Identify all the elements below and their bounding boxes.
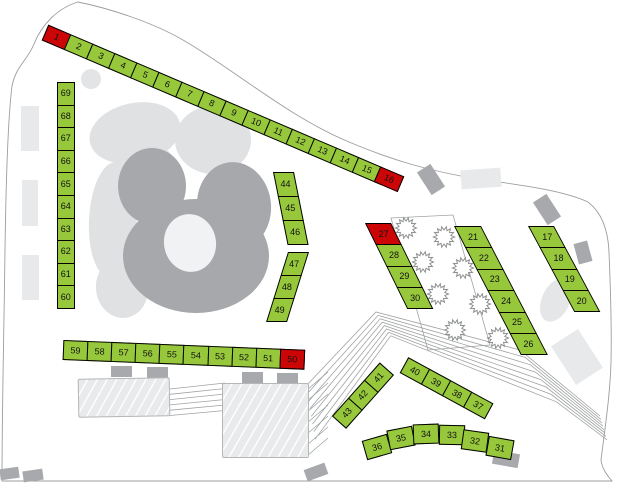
stall-24[interactable]: 24 <box>487 290 526 312</box>
stall-19[interactable]: 19 <box>551 268 589 290</box>
stall-group-arc-a: 444546 <box>273 172 309 245</box>
stall-number: 33 <box>447 430 457 439</box>
stall-55[interactable]: 55 <box>158 343 184 364</box>
stall-number: 44 <box>281 180 291 189</box>
stall-61[interactable]: 61 <box>57 263 75 287</box>
stall-number: 29 <box>399 272 409 281</box>
stall-number: 48 <box>283 283 293 292</box>
stall-group-top-row: 12345678910111213141516 <box>42 24 404 191</box>
stall-number: 26 <box>523 339 533 348</box>
stall-number: 49 <box>276 306 286 315</box>
stall-54[interactable]: 54 <box>182 344 208 365</box>
stall-number: 54 <box>190 350 200 359</box>
stall-number: 45 <box>286 204 296 213</box>
stall-63[interactable]: 63 <box>57 218 75 242</box>
stall-group-col-27: 27282930 <box>365 223 433 309</box>
stall-50[interactable]: 50 <box>279 348 305 369</box>
stall-number: 10 <box>250 116 263 128</box>
stall-68[interactable]: 68 <box>57 105 75 129</box>
stall-number: 6 <box>164 79 172 89</box>
stall-number: 35 <box>395 433 407 444</box>
stall-group-mid-row: 59585756555453525150 <box>62 340 305 370</box>
stall-number: 1 <box>53 32 61 42</box>
stall-47[interactable]: 47 <box>281 252 310 276</box>
stall-number: 46 <box>291 228 301 237</box>
stall-number: 61 <box>61 270 71 279</box>
stall-number: 62 <box>61 247 71 256</box>
stall-25[interactable]: 25 <box>498 311 537 333</box>
stall-number: 66 <box>61 157 71 166</box>
stall-48[interactable]: 48 <box>274 275 303 299</box>
site-map: 1234567891011121314151669686766656463626… <box>0 0 620 485</box>
stall-number: 68 <box>61 112 71 121</box>
stall-number: 15 <box>361 163 374 175</box>
stall-number: 41 <box>372 371 385 384</box>
stall-group-row-40: 40393837 <box>400 357 494 419</box>
stall-35[interactable]: 35 <box>386 426 415 451</box>
stall-27[interactable]: 27 <box>365 223 402 245</box>
stall-number: 28 <box>388 251 398 260</box>
stall-number: 60 <box>61 293 71 302</box>
stall-number: 59 <box>70 345 80 354</box>
stall-60[interactable]: 60 <box>57 285 75 309</box>
stall-number: 47 <box>290 260 300 269</box>
stall-46[interactable]: 46 <box>283 220 309 245</box>
stall-number: 58 <box>94 346 104 355</box>
stall-group-col-21: 212223242526 <box>454 226 548 355</box>
stall-number: 3 <box>97 51 105 61</box>
stall-number: 23 <box>490 275 500 284</box>
stall-number: 4 <box>119 60 127 70</box>
stall-28[interactable]: 28 <box>375 244 412 266</box>
stall-44[interactable]: 44 <box>273 172 299 197</box>
stall-number: 67 <box>61 134 71 143</box>
stall-51[interactable]: 51 <box>255 347 281 368</box>
stall-number: 9 <box>230 108 238 118</box>
stall-number: 52 <box>238 352 248 361</box>
stall-number: 12 <box>294 135 307 147</box>
stall-number: 56 <box>142 348 152 357</box>
stall-number: 27 <box>378 229 388 238</box>
stall-number: 30 <box>409 293 419 302</box>
stall-layer: 1234567891011121314151669686766656463626… <box>0 0 620 485</box>
stall-number: 69 <box>61 89 71 98</box>
stall-number: 25 <box>512 318 522 327</box>
stall-number: 11 <box>272 126 284 138</box>
stall-32[interactable]: 32 <box>461 429 490 452</box>
stall-30[interactable]: 30 <box>396 287 433 309</box>
stall-69[interactable]: 69 <box>57 82 75 106</box>
stall-group-col-17: 17181920 <box>528 226 600 312</box>
stall-number: 20 <box>576 296 586 305</box>
stall-number: 8 <box>208 98 216 108</box>
stall-number: 22 <box>479 254 489 263</box>
stall-number: 19 <box>565 275 575 284</box>
stall-59[interactable]: 59 <box>62 340 88 361</box>
stall-number: 16 <box>383 173 396 185</box>
stall-number: 34 <box>421 429 431 438</box>
stall-number: 5 <box>141 70 149 80</box>
stall-66[interactable]: 66 <box>57 150 75 174</box>
stall-number: 7 <box>186 89 194 99</box>
stall-52[interactable]: 52 <box>231 346 257 367</box>
stall-17[interactable]: 17 <box>528 226 566 248</box>
stall-45[interactable]: 45 <box>278 196 304 221</box>
stall-20[interactable]: 20 <box>562 290 600 312</box>
stall-number: 13 <box>316 144 329 156</box>
stall-number: 39 <box>429 376 442 389</box>
stall-group-row-43: 434241 <box>332 362 394 429</box>
stall-22[interactable]: 22 <box>465 247 504 269</box>
stall-62[interactable]: 62 <box>57 240 75 264</box>
stall-number: 50 <box>287 354 297 363</box>
stall-number: 17 <box>542 233 552 242</box>
stall-26[interactable]: 26 <box>509 333 548 355</box>
stall-23[interactable]: 23 <box>476 269 515 291</box>
stall-number: 36 <box>371 441 383 452</box>
stall-number: 55 <box>166 349 176 358</box>
stall-67[interactable]: 67 <box>57 127 75 151</box>
stall-65[interactable]: 65 <box>57 172 75 196</box>
stall-number: 14 <box>339 154 352 166</box>
stall-21[interactable]: 21 <box>454 226 493 248</box>
stall-29[interactable]: 29 <box>385 265 422 287</box>
stall-34[interactable]: 34 <box>413 424 440 445</box>
stall-group-left-col: 69686766656463626160 <box>57 82 75 309</box>
stall-57[interactable]: 57 <box>110 341 136 362</box>
stall-number: 43 <box>340 406 353 419</box>
stall-group-arc-b: 474849 <box>266 252 309 322</box>
stall-number: 18 <box>553 254 563 263</box>
stall-56[interactable]: 56 <box>134 342 160 363</box>
stall-number: 53 <box>214 351 224 360</box>
stall-53[interactable]: 53 <box>207 345 233 366</box>
stall-number: 2 <box>75 41 83 51</box>
stall-number: 38 <box>451 388 464 401</box>
stall-number: 37 <box>472 399 485 412</box>
stall-number: 21 <box>468 232 478 241</box>
stall-58[interactable]: 58 <box>86 340 112 361</box>
stall-16[interactable]: 16 <box>374 166 404 191</box>
stall-number: 64 <box>61 202 71 211</box>
stall-number: 40 <box>408 365 421 378</box>
stall-31[interactable]: 31 <box>485 436 514 460</box>
stall-number: 32 <box>469 436 480 446</box>
stall-number: 24 <box>501 297 511 306</box>
stall-18[interactable]: 18 <box>539 247 577 269</box>
stall-number: 42 <box>356 389 369 402</box>
stall-number: 31 <box>494 443 505 454</box>
stall-number: 51 <box>262 353 272 362</box>
stall-number: 65 <box>61 180 71 189</box>
stall-number: 57 <box>118 347 128 356</box>
stall-number: 63 <box>61 225 71 234</box>
stall-64[interactable]: 64 <box>57 195 75 219</box>
stall-49[interactable]: 49 <box>266 298 295 322</box>
